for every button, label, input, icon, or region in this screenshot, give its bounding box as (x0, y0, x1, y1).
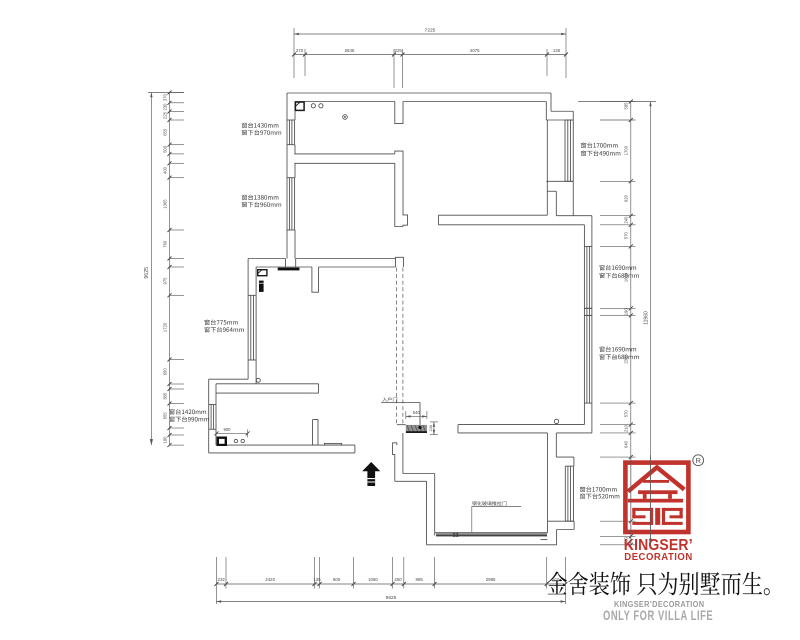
svg-text:225: 225 (162, 111, 167, 119)
svg-text:9625: 9625 (144, 267, 150, 279)
svg-text:180: 180 (162, 436, 167, 444)
svg-text:11960: 11960 (644, 311, 650, 325)
svg-text:9625: 9625 (386, 595, 397, 601)
svg-text:650: 650 (162, 368, 167, 376)
svg-text:KINGSER’DECORATION: KINGSER’DECORATION (614, 599, 704, 609)
svg-text:ONLY FOR VILLA LIFE: ONLY FOR VILLA LIFE (603, 609, 713, 623)
svg-text:2985: 2985 (486, 577, 496, 582)
svg-text:135: 135 (313, 577, 321, 582)
svg-text:640: 640 (623, 440, 628, 448)
svg-text:585: 585 (623, 102, 628, 110)
svg-text:230: 230 (162, 103, 167, 111)
svg-text:500: 500 (162, 145, 167, 153)
svg-text:2420: 2420 (265, 577, 275, 582)
svg-text:1365: 1365 (162, 199, 167, 209)
svg-text:1700: 1700 (623, 145, 628, 155)
svg-text:2845: 2845 (345, 48, 355, 53)
svg-text:225: 225 (395, 48, 403, 53)
svg-text:130: 130 (553, 48, 561, 53)
svg-text:DECORATION: DECORATION (624, 552, 692, 563)
svg-text:1060: 1060 (368, 577, 378, 582)
svg-text:250: 250 (394, 577, 402, 582)
svg-text:540: 540 (413, 410, 421, 415)
svg-text:900: 900 (224, 427, 232, 432)
svg-text:760: 760 (162, 240, 167, 248)
svg-text:4075: 4075 (470, 48, 480, 53)
svg-text:570: 570 (623, 410, 628, 418)
svg-text:570: 570 (623, 231, 628, 239)
svg-text:240: 240 (428, 424, 433, 431)
svg-text:1720: 1720 (162, 322, 167, 332)
svg-text:975: 975 (162, 277, 167, 285)
svg-text:240: 240 (623, 216, 628, 224)
svg-text:385: 385 (162, 392, 167, 400)
svg-text:400: 400 (162, 166, 167, 174)
svg-text:370: 370 (162, 93, 167, 101)
svg-text:270: 270 (296, 48, 304, 53)
svg-text:R: R (695, 456, 701, 465)
svg-text:232: 232 (218, 577, 226, 582)
svg-text:210: 210 (623, 424, 628, 432)
svg-text:895: 895 (416, 577, 424, 582)
svg-text:655: 655 (162, 128, 167, 136)
svg-text:7225: 7225 (425, 27, 436, 33)
svg-text:190: 190 (623, 308, 628, 316)
svg-text:600: 600 (333, 577, 341, 582)
svg-text:920: 920 (623, 194, 628, 202)
svg-text:655: 655 (162, 412, 167, 420)
